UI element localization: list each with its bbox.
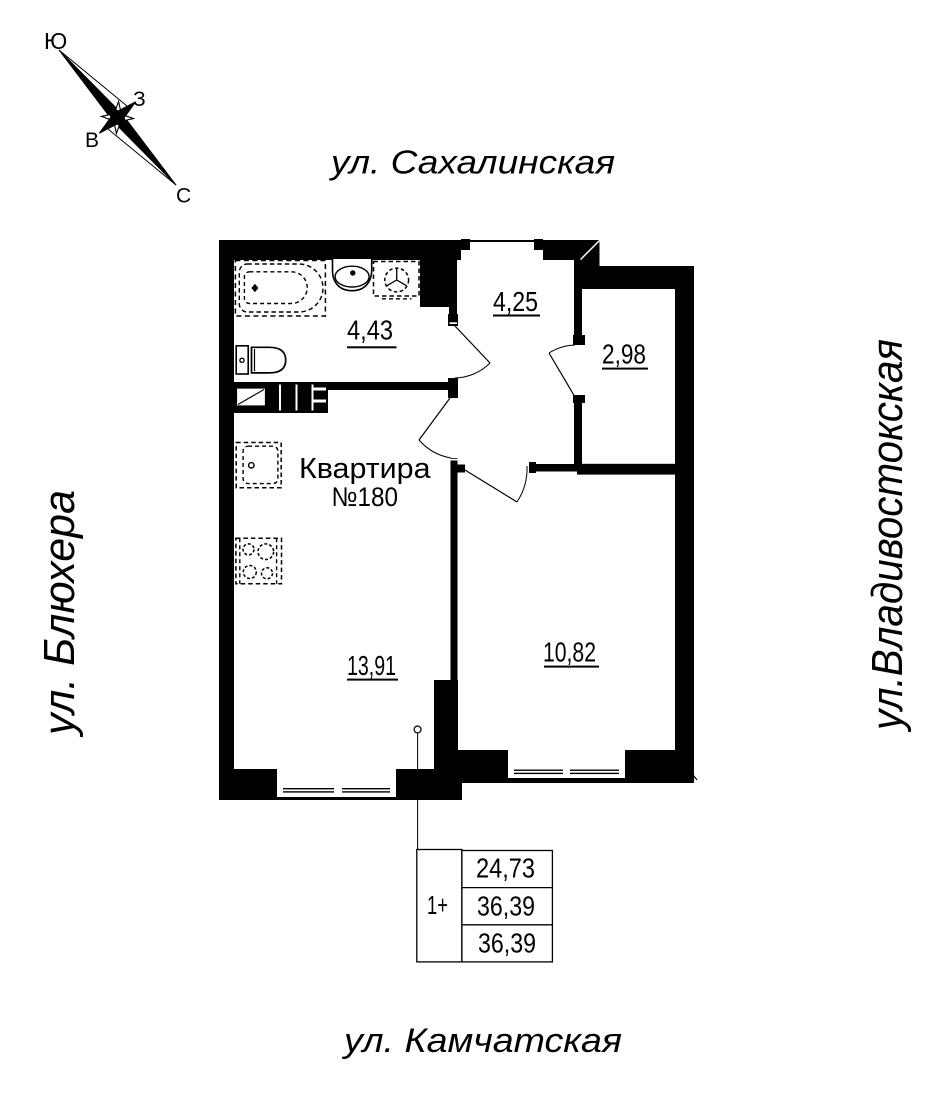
svg-text:ул. Камчатская: ул. Камчатская [342,1022,622,1060]
svg-text:4,43: 4,43 [347,315,393,346]
svg-text:ул. Сахалинская: ул. Сахалинская [329,144,615,181]
svg-text:36,39: 36,39 [478,928,536,959]
svg-text:10,82: 10,82 [543,637,596,668]
svg-text:ул.Владивостокская: ул.Владивостокская [863,339,912,733]
svg-text:13,91: 13,91 [347,650,396,681]
svg-text:В: В [85,129,99,152]
svg-text:Квартира: Квартира [299,453,431,485]
svg-text:2,98: 2,98 [602,339,646,370]
svg-text:4,25: 4,25 [493,286,538,317]
svg-text:С: С [176,185,191,208]
svg-text:№180: №180 [332,482,399,512]
svg-text:24,73: 24,73 [476,853,535,884]
svg-text:Ю: Ю [44,28,67,54]
svg-text:36,39: 36,39 [477,891,535,922]
svg-text:ул. Блюхера: ул. Блюхера [35,490,84,738]
svg-text:З: З [133,88,146,111]
svg-text:1+: 1+ [427,890,448,920]
